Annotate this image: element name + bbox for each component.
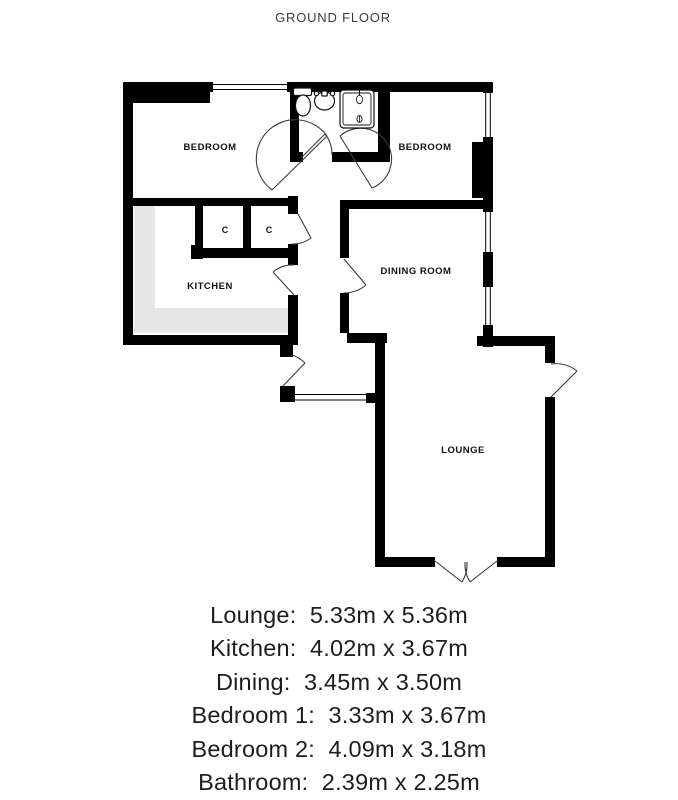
door-arc-kitchen <box>273 265 294 295</box>
dimension-dining: Dining: 3.45m x 3.50m <box>0 666 678 699</box>
room-label-cupboard-1: C <box>222 225 229 235</box>
room-label-kitchen: KITCHEN <box>187 281 233 292</box>
door-arc-cupboard <box>292 214 311 244</box>
shower-icon <box>340 90 374 128</box>
sink-icon <box>314 91 334 110</box>
door-arc-french-left <box>435 561 467 582</box>
dimension-bedroom-2: Bedroom 2: 4.09m x 3.18m <box>0 733 678 766</box>
window-bedroom-2 <box>486 93 491 137</box>
dimension-lounge: Lounge: 5.33m x 5.36m <box>0 599 678 632</box>
window-hall <box>295 395 368 401</box>
floorplan-page: GROUND FLOOR <box>0 0 678 800</box>
dimension-bathroom: Bathroom: 2.39m x 2.25m <box>0 766 678 799</box>
room-label-cupboard-2: C <box>266 225 273 235</box>
window-dining-upper <box>486 212 491 252</box>
door-arc-dining <box>343 259 366 293</box>
door-arc-hall-entry <box>283 355 305 386</box>
room-label-bedroom-2: BEDROOM <box>398 142 451 153</box>
room-label-bedroom-1: BEDROOM <box>183 142 236 153</box>
door-arc-french-right <box>465 561 497 582</box>
door-arc-lounge-side <box>551 364 577 397</box>
room-label-dining-room: DINING ROOM <box>381 266 452 277</box>
dimensions-list: Lounge: 5.33m x 5.36m Kitchen: 4.02m x 3… <box>0 599 678 799</box>
window-dining-lower <box>486 287 491 325</box>
dimension-kitchen: Kitchen: 4.02m x 3.67m <box>0 632 678 665</box>
dimension-bedroom-1: Bedroom 1: 3.33m x 3.67m <box>0 699 678 732</box>
window-bedroom-1 <box>213 85 287 90</box>
room-label-lounge: LOUNGE <box>441 445 485 456</box>
